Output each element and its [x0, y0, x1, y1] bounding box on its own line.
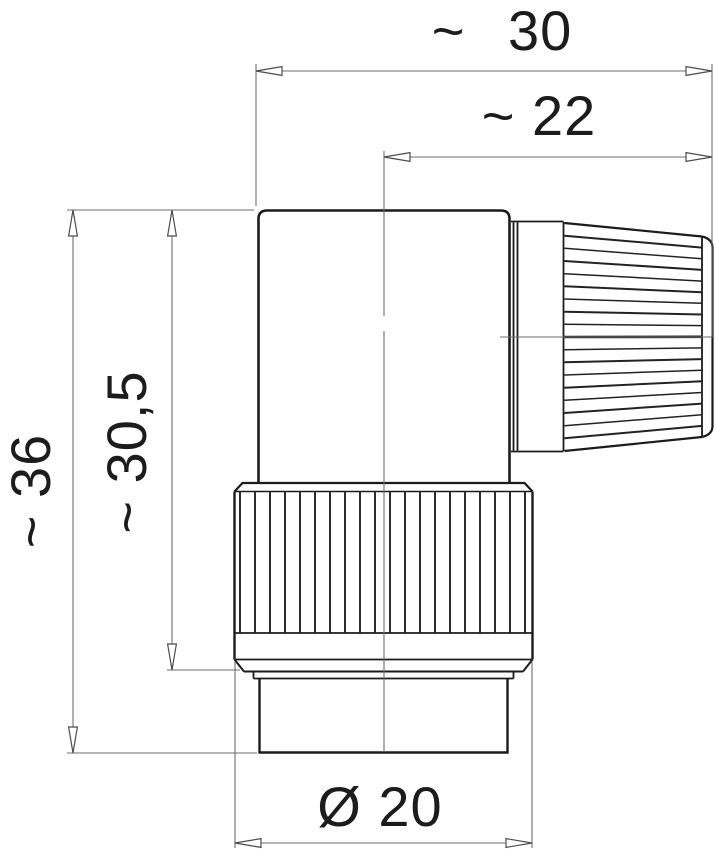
dim-label-coupling-diameter: Ø 20 [317, 775, 442, 838]
arrow-left-icon [235, 839, 261, 848]
dimension-axis-to-cable-end: ~ 22 [384, 84, 712, 161]
arrow-left-icon [256, 67, 282, 76]
arrow-left-icon [384, 153, 410, 162]
arrow-down-icon [168, 644, 177, 670]
arrow-right-icon [506, 839, 532, 848]
arrow-right-icon [686, 67, 712, 76]
connector-outline [235, 211, 713, 753]
arrow-up-icon [69, 210, 78, 236]
arrow-down-icon [69, 727, 78, 753]
coupling-ring-knurl [240, 492, 525, 633]
arrow-up-icon [168, 210, 177, 236]
drawing-canvas: ~ 30 ~ 22 ~ 36 ~ 30,5 Ø 20 [0, 0, 716, 849]
dimension-height-to-coupling: ~ 30,5 [95, 210, 240, 670]
dimension-overall-width: ~ 30 [256, 0, 712, 336]
dim-label-overall-width: ~ 30 [432, 0, 573, 62]
dim-label-height-to-coupling: ~ 30,5 [95, 370, 158, 533]
technical-drawing: ~ 30 ~ 22 ~ 36 ~ 30,5 Ø 20 [0, 0, 716, 849]
dim-label-overall-height: ~ 36 [0, 434, 62, 549]
dim-label-axis-to-cable-end: ~ 22 [482, 84, 597, 147]
arrow-right-icon [686, 153, 712, 162]
